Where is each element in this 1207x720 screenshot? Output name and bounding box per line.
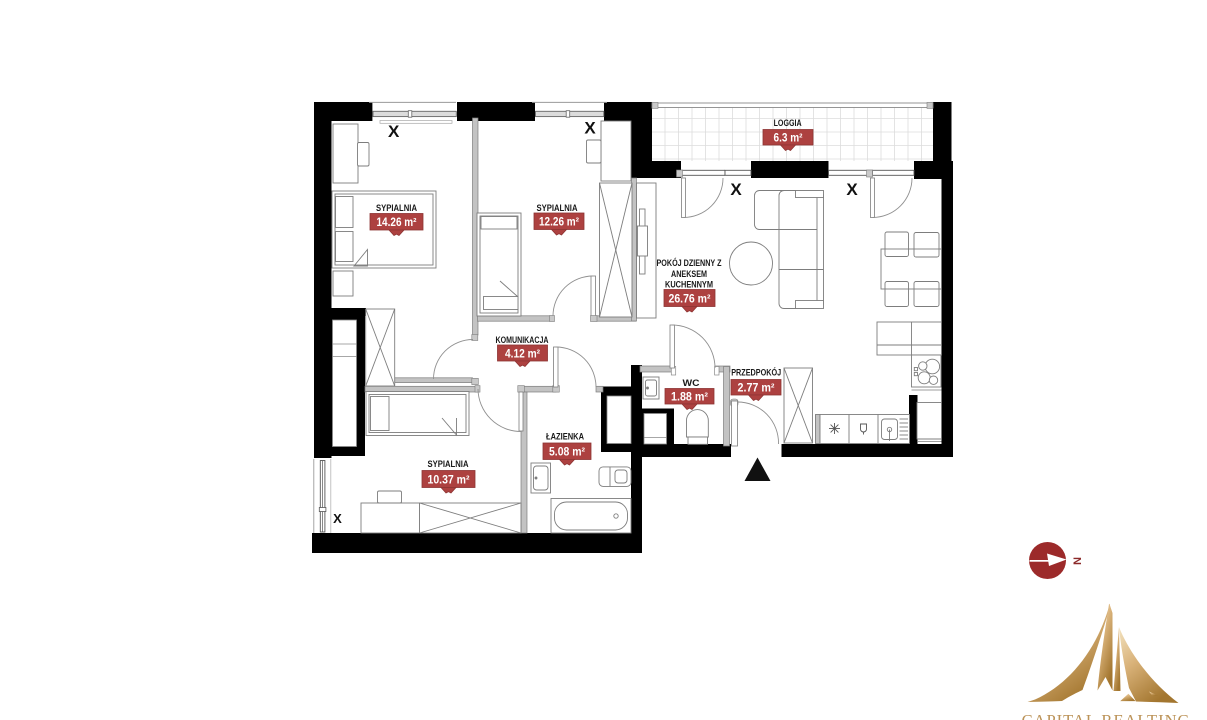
svg-text:12.26 m²: 12.26 m² [539,217,579,229]
svg-text:4.12 m²: 4.12 m² [505,349,540,361]
svg-text:X: X [584,119,596,138]
svg-text:N: N [1071,557,1083,565]
svg-text:2.77 m²: 2.77 m² [738,383,775,395]
svg-text:LOGGIA: LOGGIA [774,118,802,129]
svg-text:SYPIALNIA: SYPIALNIA [376,203,417,214]
svg-text:X: X [388,122,400,141]
svg-text:KUCHENNYM: KUCHENNYM [665,280,713,291]
svg-text:1.88 m²: 1.88 m² [671,392,708,404]
svg-text:ANEKSEM: ANEKSEM [671,269,707,280]
svg-text:5.08 m²: 5.08 m² [549,447,585,459]
svg-text:WC: WC [683,378,700,389]
svg-text:X: X [846,180,858,199]
svg-text:26.76 m²: 26.76 m² [669,294,711,306]
svg-text:POKÓJ DZIENNY Z: POKÓJ DZIENNY Z [657,257,722,269]
svg-text:CAPITAL REALTING: CAPITAL REALTING [1022,711,1191,720]
svg-text:PRZEDPOKÓJ: PRZEDPOKÓJ [731,367,781,379]
svg-text:ŁAZIENKA: ŁAZIENKA [546,432,584,443]
svg-text:X: X [333,511,342,526]
svg-text:SYPIALNIA: SYPIALNIA [428,459,469,470]
svg-text:6.3 m²: 6.3 m² [774,133,803,145]
svg-text:SYPIALNIA: SYPIALNIA [537,203,578,214]
svg-text:14.26 m²: 14.26 m² [377,217,417,229]
svg-text:KOMUNIKACJA: KOMUNIKACJA [496,335,549,346]
svg-text:X: X [730,180,742,199]
svg-text:10.37 m²: 10.37 m² [428,475,470,487]
